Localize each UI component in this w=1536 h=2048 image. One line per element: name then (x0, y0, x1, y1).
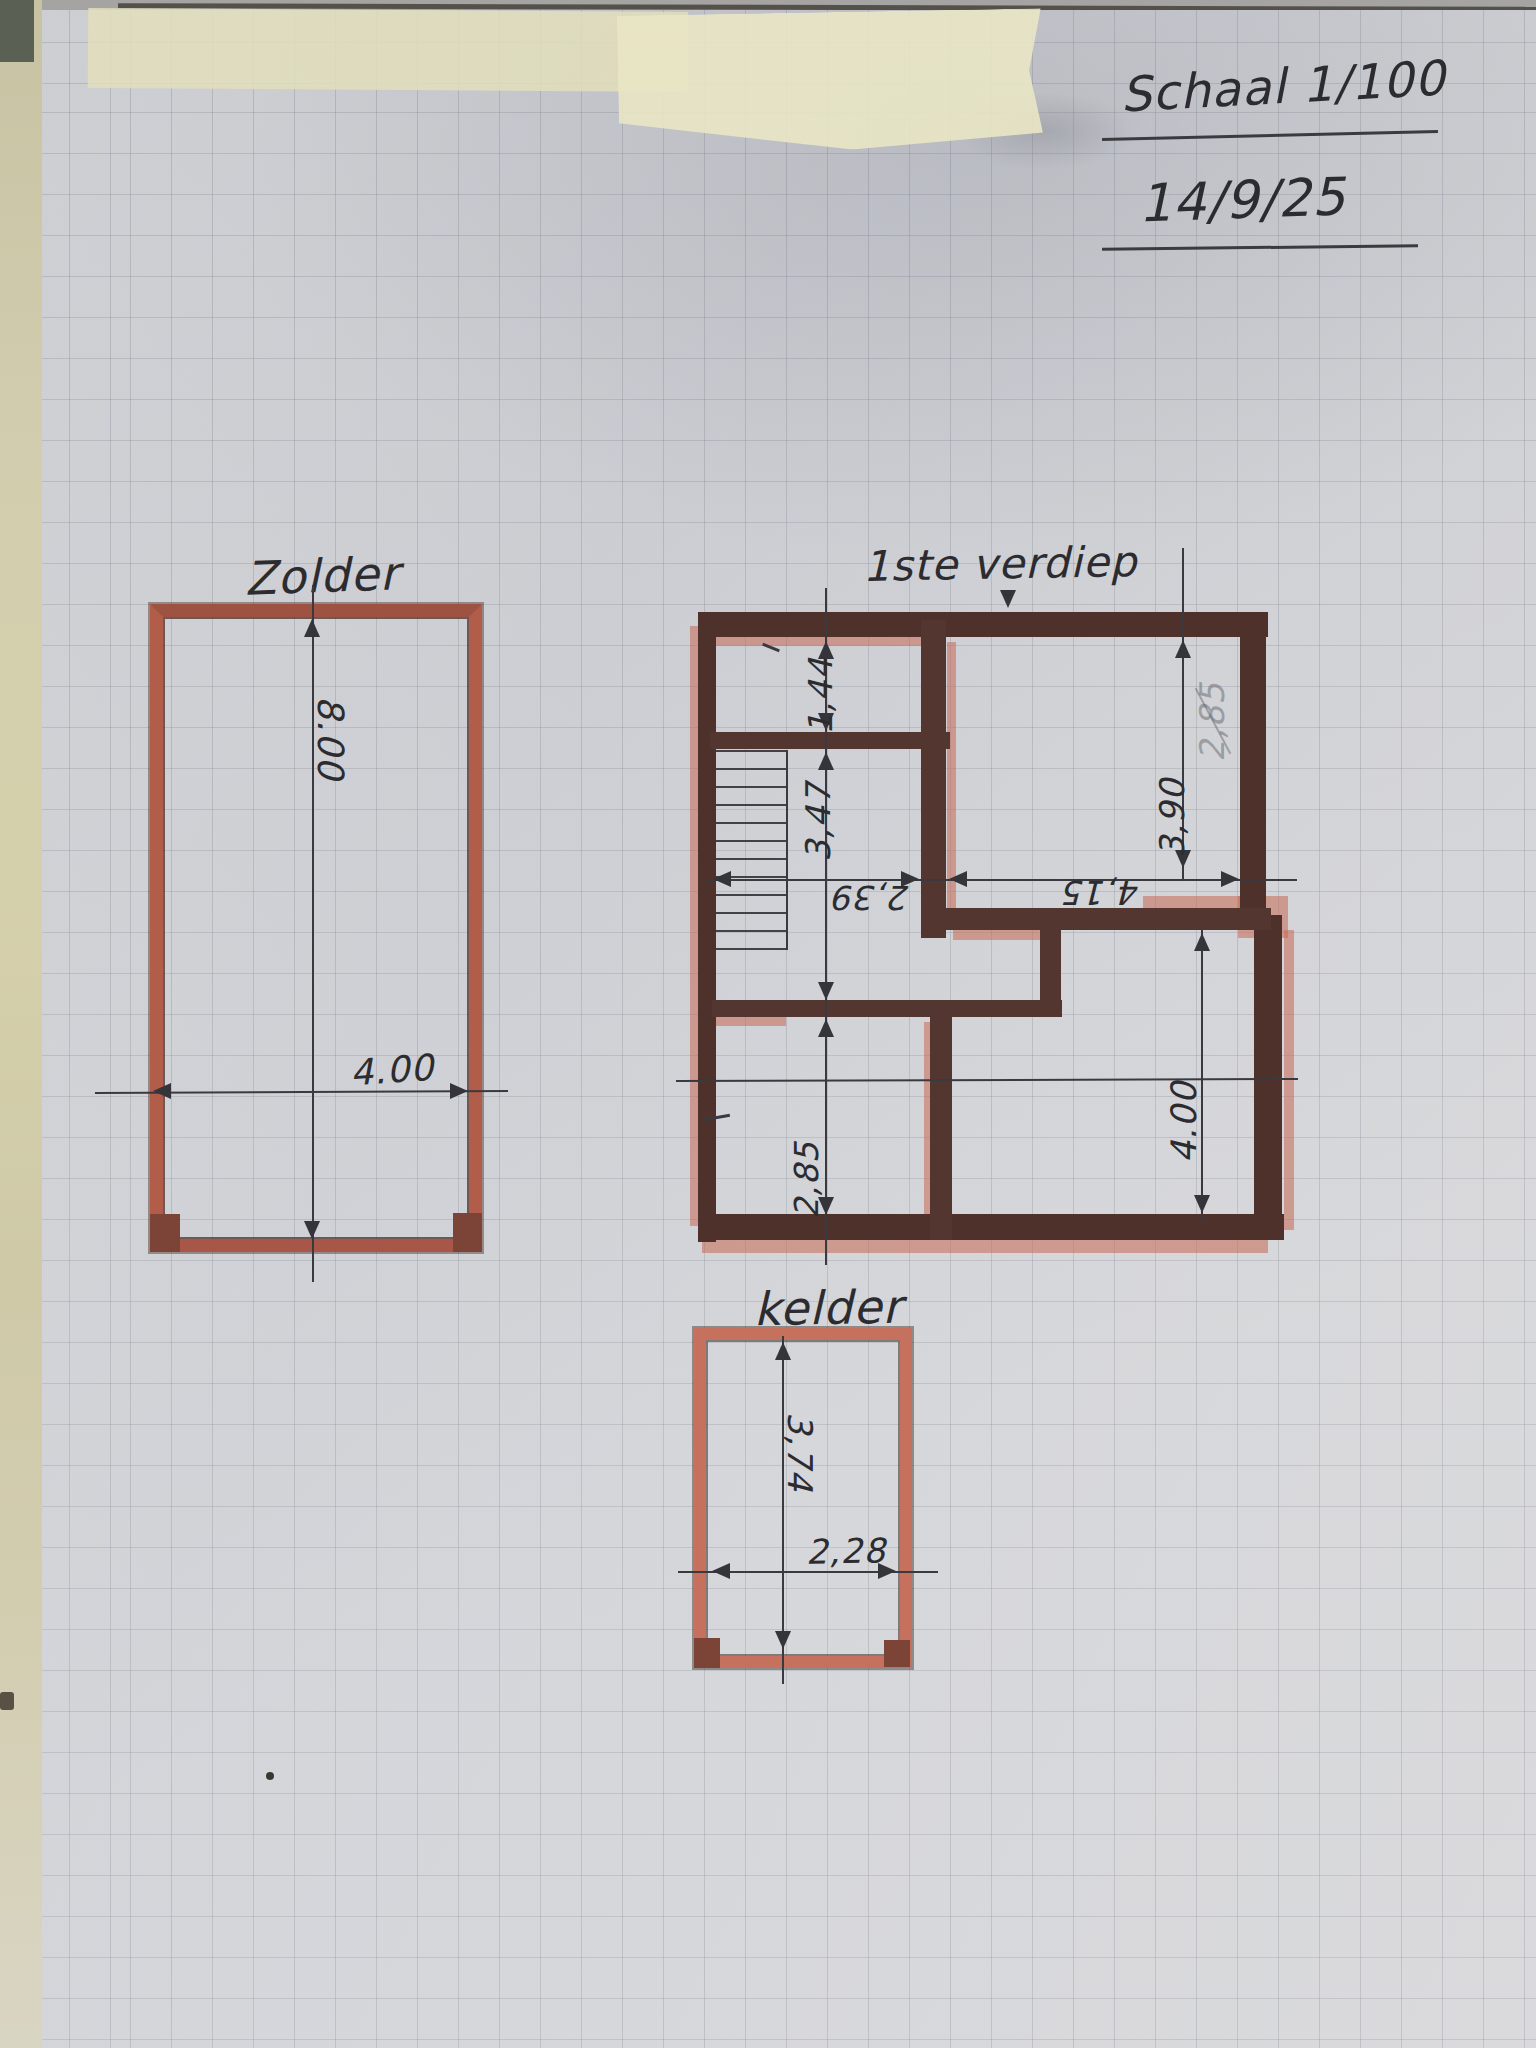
ff-wall-hall-vertical (921, 620, 946, 938)
marker-highlight (1143, 896, 1243, 908)
date-label: 14/9/25 (1137, 166, 1346, 233)
kelder-corner-blob (694, 1638, 720, 1668)
dim-arrow (1221, 871, 1239, 887)
zolder-height-dim-line (312, 585, 314, 1282)
dim-arrow (1175, 640, 1191, 658)
marker-highlight (953, 930, 1048, 940)
ff-dim-2-39: 2,39 (833, 878, 910, 917)
ff-wall-bottomrooms-divider (930, 1010, 952, 1240)
ff-dim-3-90: 3,90 (1152, 778, 1192, 858)
dim-arrow (775, 1342, 791, 1360)
dim-arrow (153, 1083, 171, 1099)
dim-arrow (712, 1563, 730, 1579)
zolder-corner-blob (453, 1213, 482, 1252)
ff-wall-right-upper (1240, 614, 1266, 929)
dim-arrow (1194, 1195, 1210, 1213)
paper-speck (266, 1772, 274, 1780)
ff-dim-1-44: 1,44 (801, 657, 840, 734)
ff-dim-4-15: 4,15 (1063, 873, 1140, 912)
dim-arrow (713, 871, 731, 887)
dim-arrow (304, 619, 320, 637)
background-corner (0, 0, 34, 62)
marker-highlight (702, 1240, 1268, 1253)
masking-tape-left (88, 8, 689, 92)
marker-highlight (716, 1017, 786, 1026)
staircase (716, 750, 786, 956)
zolder-label: Zolder (244, 546, 401, 605)
first-floor-label: 1ste verdiep (862, 537, 1137, 591)
edge-mark (0, 1692, 14, 1710)
dim-arrow (818, 1019, 834, 1037)
ff-wall-left (698, 612, 716, 1242)
ff-bottomright-dim-line (1201, 930, 1203, 1222)
ff-dim-3-47: 3,47 (798, 782, 838, 862)
floorplan-photo: Schaal 1/100 14/9/25 Zolder 8.00 4.00 1s… (0, 0, 1536, 2048)
dim-arrow (818, 982, 834, 1000)
dim-arrow (450, 1083, 468, 1099)
stair-stringer-line (786, 750, 788, 950)
dim-arrow (775, 1631, 791, 1649)
zolder-width-value: 4.00 (349, 1047, 436, 1094)
ff-dim-2-85: 2,85 (787, 1141, 826, 1218)
kelder-height-value: 3,74 (780, 1412, 820, 1492)
dim-arrow (949, 871, 967, 887)
ff-width-dim-line (705, 879, 1297, 881)
ff-wall-hall-bottom (712, 1000, 1062, 1017)
marker-highlight (690, 626, 698, 1226)
dim-arrow (818, 752, 834, 770)
table-surface-left (0, 0, 42, 2048)
dim-arrow (1194, 933, 1210, 951)
label-pointer-arrow (1000, 590, 1016, 608)
kelder-outline (694, 1328, 912, 1668)
kelder-width-value: 2,28 (806, 1530, 886, 1571)
ff-dim-4-00: 4.00 (1164, 1081, 1204, 1163)
zolder-corner-blob (150, 1214, 180, 1252)
kelder-corner-blob (884, 1640, 910, 1667)
dim-arrow (304, 1221, 320, 1239)
marker-highlight (1284, 930, 1294, 1230)
zolder-height-value: 8.00 (310, 696, 351, 780)
